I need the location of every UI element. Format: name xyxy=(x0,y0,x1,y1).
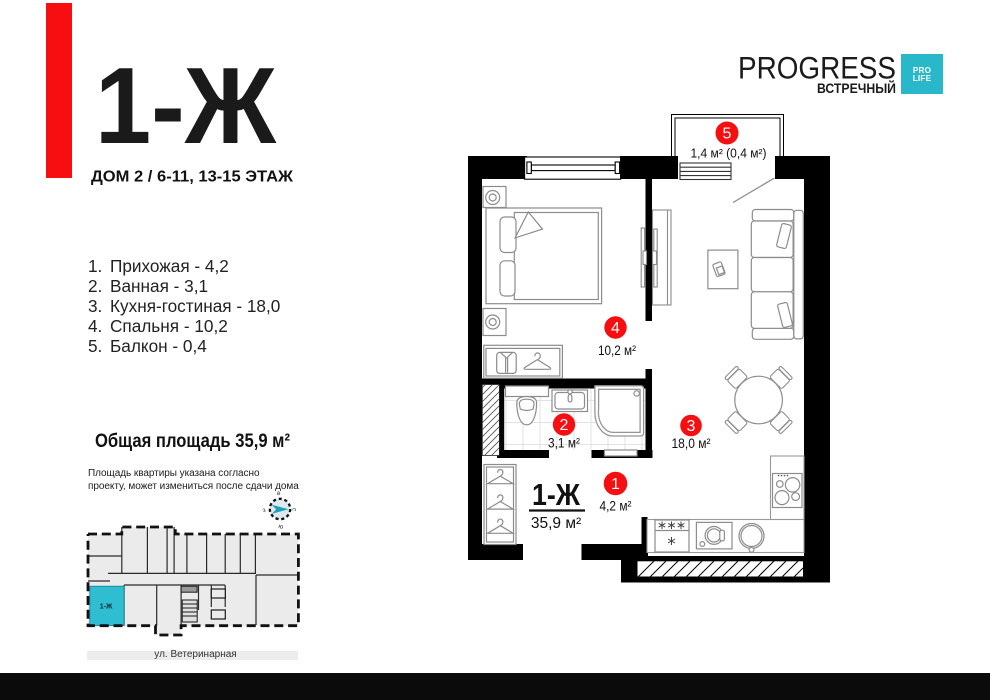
svg-text:4,2 м²: 4,2 м² xyxy=(600,499,632,514)
svg-text:1-Ж: 1-Ж xyxy=(95,45,277,167)
svg-text:1-Ж: 1-Ж xyxy=(532,477,581,512)
svg-text:с: с xyxy=(290,506,298,512)
svg-text:18,0 м²: 18,0 м² xyxy=(672,436,711,451)
svg-text:1,4 м² (0,4 м²): 1,4 м² (0,4 м²) xyxy=(691,146,767,161)
svg-text:3: 3 xyxy=(687,418,696,435)
svg-text:1: 1 xyxy=(611,476,620,493)
svg-text:з: з xyxy=(261,506,266,514)
svg-text:1-Ж: 1-Ж xyxy=(100,604,113,611)
svg-text:ДОМ 2 / 6-11, 13-15 ЭТАЖ: ДОМ 2 / 6-11, 13-15 ЭТАЖ xyxy=(91,169,294,186)
svg-text:4: 4 xyxy=(611,320,620,337)
svg-text:3,1 м²: 3,1 м² xyxy=(548,436,580,451)
svg-text:5: 5 xyxy=(723,126,732,143)
svg-text:в: в xyxy=(276,489,282,497)
svg-text:10,2 м²: 10,2 м² xyxy=(598,343,636,358)
svg-text:ВСТРЕЧНЫЙ: ВСТРЕЧНЫЙ xyxy=(817,79,896,96)
svg-text:35,9 м²: 35,9 м² xyxy=(531,515,581,532)
svg-text:2: 2 xyxy=(560,417,569,434)
svg-text:Общая площадь 35,9 м²: Общая площадь 35,9 м² xyxy=(95,431,290,452)
